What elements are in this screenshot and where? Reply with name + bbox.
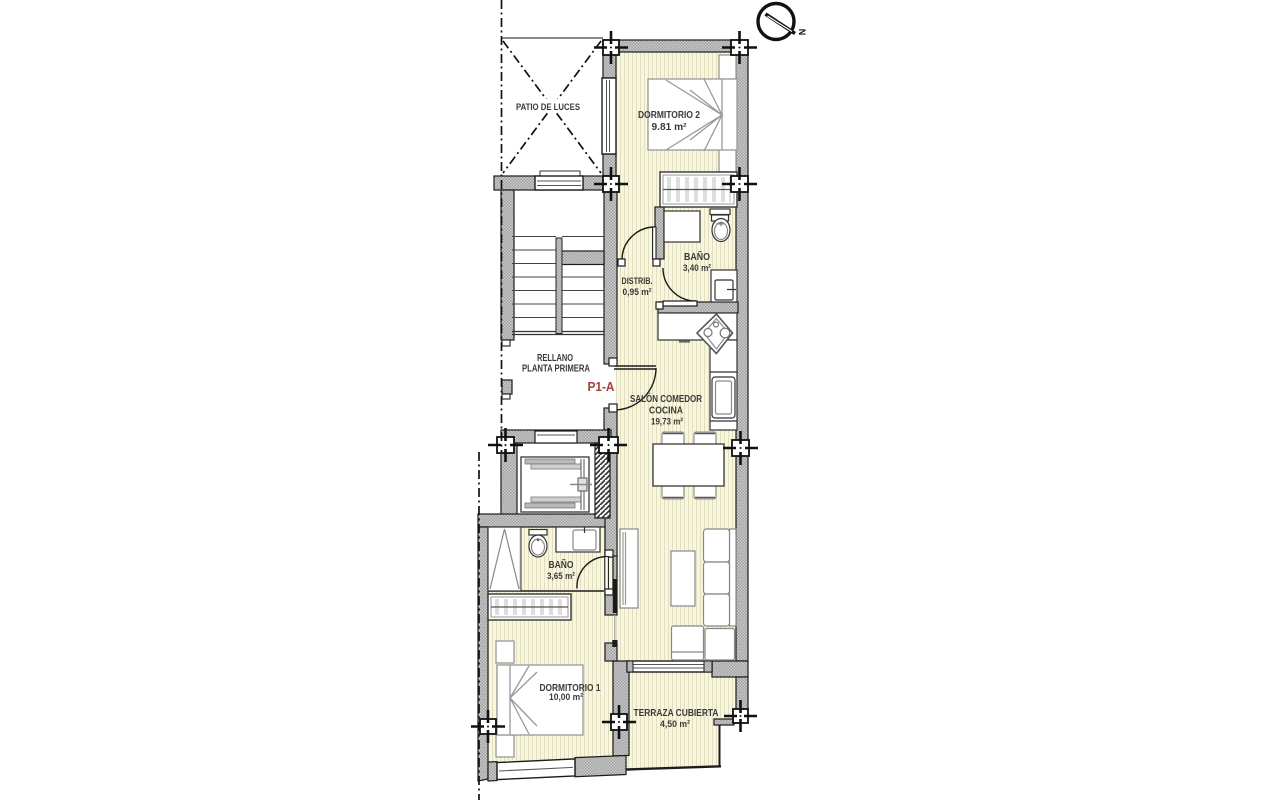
svg-text:N: N xyxy=(797,29,807,36)
svg-text:BAÑO: BAÑO xyxy=(684,250,710,263)
svg-text:DORMITORIO 2: DORMITORIO 2 xyxy=(638,109,700,121)
svg-text:10,00 m²: 10,00 m² xyxy=(549,692,583,703)
svg-text:COCINA: COCINA xyxy=(649,405,683,417)
svg-text:PLANTA PRIMERA: PLANTA PRIMERA xyxy=(522,364,590,375)
svg-text:4,50 m²: 4,50 m² xyxy=(660,719,690,730)
svg-text:P1-A: P1-A xyxy=(588,379,616,394)
svg-text:DISTRIB.: DISTRIB. xyxy=(622,276,653,287)
svg-text:TERRAZA CUBIERTA: TERRAZA CUBIERTA xyxy=(634,707,719,719)
svg-text:PATIO DE LUCES: PATIO DE LUCES xyxy=(516,102,580,113)
svg-text:0,95 m²: 0,95 m² xyxy=(623,287,652,298)
svg-text:SALÓN COMEDOR: SALÓN COMEDOR xyxy=(630,392,702,405)
svg-text:9.81 m²: 9.81 m² xyxy=(652,122,688,133)
svg-text:RELLANO: RELLANO xyxy=(537,353,573,364)
svg-text:19,73 m²: 19,73 m² xyxy=(651,417,683,428)
svg-text:3,40 m²: 3,40 m² xyxy=(683,263,711,274)
svg-text:3,65 m²: 3,65 m² xyxy=(547,571,575,582)
svg-text:BAÑO: BAÑO xyxy=(549,558,574,571)
